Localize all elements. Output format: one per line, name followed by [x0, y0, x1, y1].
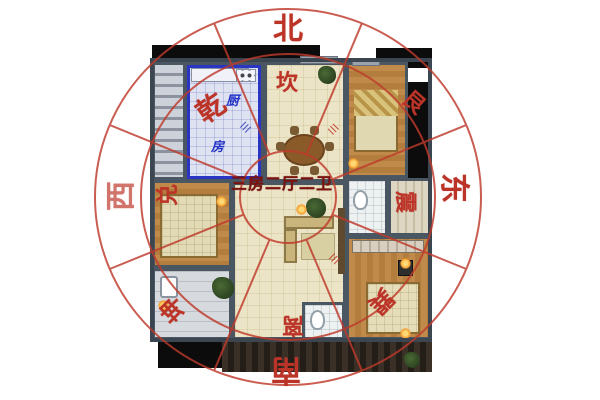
trigram-label-li: 离: [282, 311, 304, 343]
direction-label-north: 北: [273, 4, 303, 48]
trigram-label-kan: 坎: [276, 65, 298, 97]
kitchen-label-char-1: 厨: [226, 90, 239, 109]
kitchen-label-char-2: 房: [211, 136, 224, 155]
trigram-label-dui: 兑: [150, 184, 182, 206]
direction-label-south: 南: [271, 351, 301, 395]
direction-label-east: 东: [435, 173, 479, 203]
fengshui-floorplan-image: 厨 房 北 东 南 西 坎 艮 震 巽 离 坤 兑 乾 ☰ ☰ ☰ 三房二厅二卫: [0, 0, 600, 400]
direction-label-west: 西: [96, 181, 140, 211]
trigram-label-zhen: 震: [391, 191, 423, 213]
plan-title: 三房二厅二卫: [231, 170, 335, 194]
